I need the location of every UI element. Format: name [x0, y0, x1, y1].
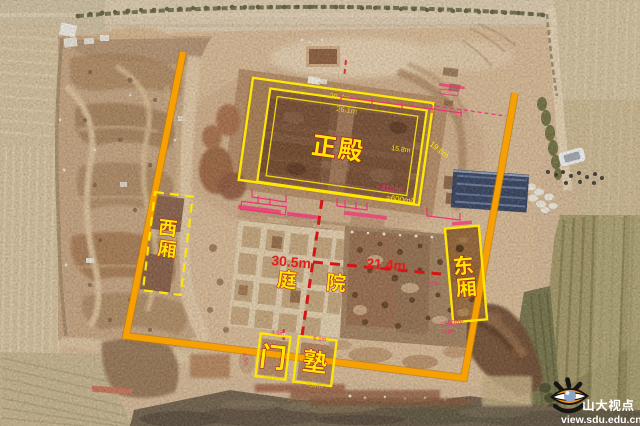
svg-text:4.8m: 4.8m: [443, 329, 457, 336]
svg-text:21.4m: 21.4m: [366, 255, 407, 274]
svg-text:20m: 20m: [428, 282, 440, 288]
svg-text:view.sdu.edu.cn: view.sdu.edu.cn: [561, 414, 640, 426]
